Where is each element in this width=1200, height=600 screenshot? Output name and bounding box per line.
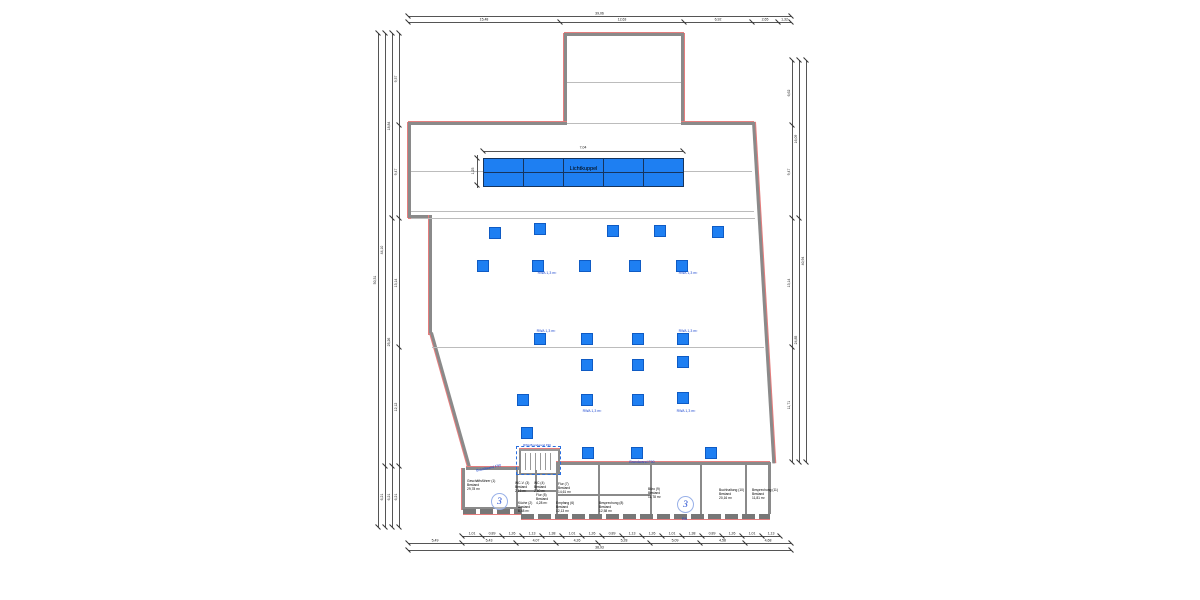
room-label: Besprechung (8)Bestand12,58 m² bbox=[599, 501, 623, 513]
dim-label: 12,12 bbox=[394, 402, 398, 411]
dim-label: 5,49 bbox=[432, 539, 439, 543]
dim-label: 6,92 bbox=[715, 18, 722, 22]
wall-left-lower bbox=[429, 215, 432, 335]
dim-label: 6,62 bbox=[787, 89, 791, 96]
dim-label: 5,43 bbox=[486, 539, 493, 543]
dim-chain-right_2 bbox=[799, 60, 800, 462]
room-area: 14,61 m² bbox=[558, 490, 571, 494]
room-label: Besprechung (11)Bestand11,81 m² bbox=[752, 488, 778, 500]
room-label: Flur (5)Bestand4,28 m² bbox=[536, 493, 548, 505]
rwa-vent-label: RWA 1,3 m² bbox=[583, 409, 602, 413]
rwa-vent-square bbox=[607, 225, 619, 237]
room-area: 11,78 m² bbox=[648, 495, 661, 499]
rwa-vent-square bbox=[705, 447, 717, 459]
stair-rwa-label: RWA Brandwand F90 bbox=[523, 443, 551, 447]
lichtkuppel-height-dim: 1,25 bbox=[471, 168, 475, 175]
lichtkuppel-width-dim: 7,04 bbox=[580, 146, 587, 150]
wall-strip-left bbox=[462, 468, 465, 510]
dim-label: 5,28 bbox=[621, 539, 628, 543]
room-label: WC-V. (3)Bestand2,16 m² bbox=[515, 481, 529, 493]
dim-label: 25,26 bbox=[387, 338, 391, 347]
room-label: Flur (7)Bestand14,61 m² bbox=[558, 482, 571, 494]
brandwand-label-left: Brandwand F90 bbox=[476, 463, 502, 472]
rwa-vent-square bbox=[654, 225, 666, 237]
rwa-vent-square bbox=[489, 227, 501, 239]
rwa-vent-label: RWA 1,3 m² bbox=[538, 271, 557, 275]
partition-wall bbox=[558, 494, 651, 496]
dim-label: 1,13 bbox=[529, 532, 536, 536]
dim-label: 1,26 bbox=[649, 532, 656, 536]
dim-label: 15,48 bbox=[480, 18, 489, 22]
rwa-vent-square bbox=[677, 356, 689, 368]
dim-label: 38,93 bbox=[595, 546, 604, 550]
dim-label: 40,94 bbox=[801, 257, 805, 266]
brandwand-label-right: Brandwand F90 bbox=[629, 460, 654, 464]
dim-label: 9,37 bbox=[394, 76, 398, 83]
line-bump-base bbox=[567, 123, 681, 124]
floorplan-canvas: 7,04 1,25 Lichtkuppel bbox=[0, 0, 1200, 600]
dim-label: 4,58 bbox=[719, 539, 726, 543]
dim-chain-left_3 bbox=[385, 33, 386, 527]
dim-label: 1,26 bbox=[729, 532, 736, 536]
wall-top-left bbox=[408, 122, 567, 125]
rwa-vent-square bbox=[631, 447, 643, 459]
rwa-vent-square bbox=[632, 394, 644, 406]
rwa-vent-square bbox=[629, 260, 641, 272]
dim-label: 1,01 bbox=[569, 532, 576, 536]
dim-label: 6,21 bbox=[380, 493, 384, 500]
rwa-vent-square bbox=[712, 226, 724, 238]
dim-chain-left_1 bbox=[399, 33, 400, 527]
dim-label: 1,13 bbox=[629, 532, 636, 536]
dim-label: 9,47 bbox=[394, 168, 398, 175]
dim-label: 1,01 bbox=[469, 532, 476, 536]
dim-chain-right_1 bbox=[792, 60, 793, 462]
rwa-vent-label: RWA 1,3 m² bbox=[679, 271, 698, 275]
dim-label: 39,06 bbox=[595, 12, 604, 16]
room-area: 20,16 m² bbox=[719, 496, 744, 500]
rwa-vent-label: RWA 1,3 m² bbox=[537, 329, 556, 333]
dim-label: 6,21 bbox=[387, 493, 391, 500]
dim-label: 18,84 bbox=[387, 121, 391, 130]
line-band-bottom bbox=[411, 218, 755, 219]
room-label: WC (4)Bestand2,60 m² bbox=[534, 481, 546, 493]
wall-top-right bbox=[681, 122, 754, 125]
dim-label: 1,01 bbox=[669, 532, 676, 536]
line-hall-mid bbox=[432, 347, 764, 348]
room-area: 29,78 m² bbox=[467, 487, 495, 491]
dim-label: 1,32 bbox=[781, 18, 788, 22]
dim-label: 0,89 bbox=[609, 532, 616, 536]
dim-label: 13,14 bbox=[394, 278, 398, 287]
room-area: 2,16 m² bbox=[515, 489, 529, 493]
dim-label: 0,89 bbox=[709, 532, 716, 536]
room-count-badge: 3 bbox=[491, 493, 508, 510]
dim-label: 5,09 bbox=[672, 539, 679, 543]
wall-strip-top-right bbox=[556, 462, 770, 465]
dim-chain-top_total bbox=[408, 16, 791, 17]
room-label: Empfang (6)Bestand12,13 m² bbox=[556, 501, 574, 513]
ra-label: RA bbox=[682, 517, 687, 521]
wall-left-diagonal bbox=[430, 332, 471, 468]
dim-chain-right_3 bbox=[806, 60, 807, 462]
rwa-vent-square bbox=[632, 333, 644, 345]
dim-chain-left_2 bbox=[392, 33, 393, 527]
room-area: 11,81 m² bbox=[752, 496, 778, 500]
wall-bump-left bbox=[564, 33, 567, 125]
dim-chain-top_segments bbox=[408, 22, 791, 23]
wall-left-upper bbox=[408, 122, 411, 218]
dim-label: 4,68 bbox=[765, 539, 772, 543]
dim-label: 9,47 bbox=[787, 168, 791, 175]
room-label: Geschäftsführer (1)Bestand29,78 m² bbox=[467, 479, 495, 491]
lichtkuppel-skylight: Lichtkuppel bbox=[483, 158, 684, 187]
rwa-vent-square bbox=[632, 359, 644, 371]
wall-bump-top bbox=[564, 33, 684, 36]
rwa-vent-square bbox=[581, 359, 593, 371]
rwa-vent-square bbox=[517, 394, 529, 406]
lichtkuppel-label: Lichtkuppel bbox=[484, 166, 683, 172]
dim-label: 6,21 bbox=[394, 493, 398, 500]
dim-label: 1,26 bbox=[589, 532, 596, 536]
rwa-vent-square bbox=[534, 333, 546, 345]
rwa-vent-square bbox=[581, 394, 593, 406]
lichtkuppel-midline bbox=[484, 172, 683, 173]
window-band-right bbox=[521, 514, 770, 520]
partition-wall bbox=[700, 463, 702, 514]
rwa-vent-label: RWA 1,3 m² bbox=[677, 409, 696, 413]
dim-label: 12,63 bbox=[618, 18, 627, 22]
rwa-vent-square bbox=[521, 427, 533, 439]
line-band-top bbox=[411, 211, 754, 212]
room-area: 4,28 m² bbox=[536, 501, 548, 505]
lichtkuppel-dim-line bbox=[483, 151, 683, 152]
dim-label: 13,14 bbox=[787, 278, 791, 287]
dim-label: 0,89 bbox=[489, 532, 496, 536]
dim-label: 11,71 bbox=[787, 400, 791, 409]
dim-label: 2,65 bbox=[762, 18, 769, 22]
room-label: Buchhaltung (10)Bestand20,16 m² bbox=[719, 488, 744, 500]
dim-label: 1,38 bbox=[689, 532, 696, 536]
floorplan-drawing: 7,04 1,25 Lichtkuppel bbox=[0, 0, 1200, 600]
rwa-vent-square bbox=[477, 260, 489, 272]
dim-label: 4,26 bbox=[574, 539, 581, 543]
wall-bump-right bbox=[681, 33, 684, 125]
dim-label: 1,01 bbox=[749, 532, 756, 536]
rwa-vent-square bbox=[581, 333, 593, 345]
dim-label: 1,38 bbox=[549, 532, 556, 536]
line-bump-interior bbox=[567, 82, 681, 83]
partition-wall bbox=[745, 463, 747, 514]
dim-label: 50,31 bbox=[373, 276, 377, 285]
rwa-vent-square bbox=[582, 447, 594, 459]
room-label: Küche (2)Bestand6,48 m² bbox=[518, 501, 532, 513]
window-band-left bbox=[463, 509, 521, 515]
room-area: 6,48 m² bbox=[518, 509, 532, 513]
rwa-vent-square bbox=[677, 333, 689, 345]
rwa-vent-square bbox=[579, 260, 591, 272]
dim-chain-bottom_total bbox=[408, 550, 791, 551]
rwa-vent-square bbox=[677, 392, 689, 404]
stair-rwa-dashed-outline bbox=[516, 446, 561, 475]
dim-label: 4,07 bbox=[533, 539, 540, 543]
dim-label: 16,09 bbox=[794, 135, 798, 144]
room-area: 12,13 m² bbox=[556, 509, 574, 513]
room-label: Büro (9)Bestand11,78 m² bbox=[648, 487, 661, 499]
rwa-vent-label: RWA 1,3 m² bbox=[679, 329, 698, 333]
dim-chain-left_4 bbox=[378, 33, 379, 527]
dim-label: 44,10 bbox=[380, 245, 384, 254]
room-area: 12,58 m² bbox=[599, 509, 623, 513]
dim-label: 1,26 bbox=[509, 532, 516, 536]
wall-right-diagonal bbox=[752, 122, 775, 464]
dim-label: 24,85 bbox=[794, 336, 798, 345]
rwa-vent-square bbox=[534, 223, 546, 235]
dim-label: 1,13 bbox=[768, 532, 775, 536]
room-count-badge: 3 bbox=[677, 496, 694, 513]
